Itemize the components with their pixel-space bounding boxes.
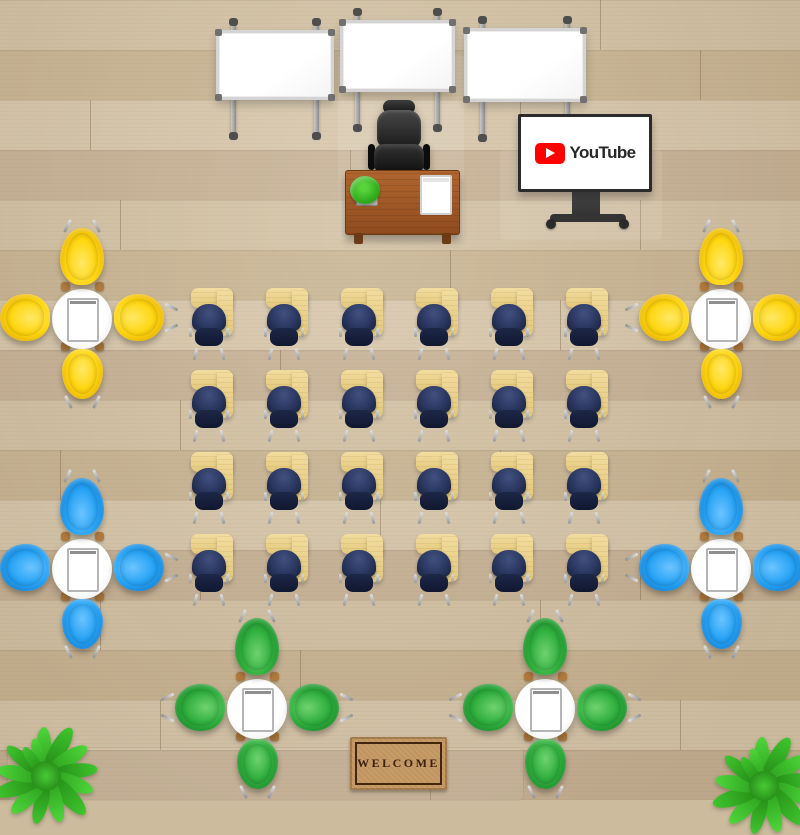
table-groups xyxy=(0,0,800,800)
table-leg xyxy=(95,532,104,541)
table-yellow-left-chair-top[interactable] xyxy=(60,228,104,285)
chair-leg xyxy=(92,469,101,483)
chair-leg xyxy=(92,645,101,659)
chair-leg xyxy=(731,469,740,483)
chair-leg xyxy=(161,714,175,723)
table-green-left-chair-right[interactable] xyxy=(289,684,339,731)
table-notebook xyxy=(67,548,99,592)
chair-leg xyxy=(625,574,639,583)
desk-leg xyxy=(354,233,363,244)
table-notebook xyxy=(706,298,738,342)
chair-leg xyxy=(703,645,712,659)
desk-plant-icon xyxy=(350,176,380,204)
desk-notebook xyxy=(420,175,452,215)
chair-leg xyxy=(703,395,712,409)
chair-leg xyxy=(165,574,179,583)
table-leg xyxy=(236,672,245,681)
round-table[interactable] xyxy=(691,539,751,599)
table-blue-right-chair-left[interactable] xyxy=(639,544,689,591)
table-green-left-chair-left[interactable] xyxy=(175,684,225,731)
chair-leg xyxy=(555,609,564,623)
chair-leg xyxy=(161,693,175,702)
table-blue-left xyxy=(0,475,167,659)
chair-leg xyxy=(702,469,711,483)
chair-leg xyxy=(702,219,711,233)
chair-leg xyxy=(165,303,179,312)
chair-leg xyxy=(731,219,740,233)
table-blue-right-chair-right[interactable] xyxy=(753,544,800,591)
chair-leg xyxy=(239,785,248,799)
table-green-left xyxy=(172,615,342,799)
table-blue-right-chair-top[interactable] xyxy=(699,478,743,535)
chair-leg xyxy=(64,395,73,409)
table-blue-left-chair-left[interactable] xyxy=(0,544,50,591)
round-table[interactable] xyxy=(515,679,575,739)
table-green-right-chair-right[interactable] xyxy=(577,684,627,731)
chair-leg xyxy=(526,609,535,623)
table-yellow-right-chair-top[interactable] xyxy=(699,228,743,285)
table-green-right xyxy=(460,615,630,799)
table-leg xyxy=(61,532,70,541)
table-leg xyxy=(524,672,533,681)
chair-leg xyxy=(527,785,536,799)
chair-leg xyxy=(165,324,179,333)
chair-leg xyxy=(267,785,276,799)
teacher-desk[interactable] xyxy=(345,170,460,235)
table-leg xyxy=(700,282,709,291)
table-leg xyxy=(700,532,709,541)
chair-leg xyxy=(267,609,276,623)
chair-leg xyxy=(625,303,639,312)
table-yellow-left-chair-left[interactable] xyxy=(0,294,50,341)
chair-leg xyxy=(340,714,354,723)
table-blue-left-chair-bottom[interactable] xyxy=(62,599,103,649)
doormat-frame: WELCOME xyxy=(355,742,442,785)
chair-leg xyxy=(625,324,639,333)
chair-leg xyxy=(628,693,642,702)
desk-leg xyxy=(442,233,451,244)
table-leg xyxy=(558,672,567,681)
table-yellow-left-chair-right[interactable] xyxy=(114,294,164,341)
table-blue-left-chair-top[interactable] xyxy=(60,478,104,535)
table-leg xyxy=(734,532,743,541)
chair-leg xyxy=(64,645,73,659)
table-leg xyxy=(95,282,104,291)
round-table[interactable] xyxy=(227,679,287,739)
round-table[interactable] xyxy=(52,539,112,599)
table-blue-right xyxy=(636,475,800,659)
plant-center xyxy=(31,761,61,791)
round-table[interactable] xyxy=(691,289,751,349)
table-yellow-right-chair-bottom[interactable] xyxy=(701,349,742,399)
chair-leg xyxy=(731,395,740,409)
chair-leg xyxy=(63,219,72,233)
doormat-text: WELCOME xyxy=(357,756,440,771)
table-notebook xyxy=(706,548,738,592)
virtual-classroom: { "scene": { "description": "Top-down vi… xyxy=(0,0,800,800)
chair-leg xyxy=(731,645,740,659)
table-green-right-chair-bottom[interactable] xyxy=(525,739,566,789)
table-yellow-right-chair-left[interactable] xyxy=(639,294,689,341)
table-blue-right-chair-bottom[interactable] xyxy=(701,599,742,649)
table-notebook xyxy=(530,688,562,732)
table-yellow-right-chair-right[interactable] xyxy=(753,294,800,341)
round-table[interactable] xyxy=(52,289,112,349)
table-green-left-chair-bottom[interactable] xyxy=(237,739,278,789)
plant-center xyxy=(749,771,779,801)
table-yellow-left xyxy=(0,225,167,409)
chair-leg xyxy=(92,395,101,409)
table-green-right-chair-left[interactable] xyxy=(463,684,513,731)
table-notebook xyxy=(242,688,274,732)
table-blue-left-chair-right[interactable] xyxy=(114,544,164,591)
chair-leg xyxy=(555,785,564,799)
chair-leg xyxy=(449,714,463,723)
table-leg xyxy=(734,282,743,291)
table-yellow-right xyxy=(636,225,800,409)
chair-leg xyxy=(449,693,463,702)
table-leg xyxy=(270,672,279,681)
chair-leg xyxy=(340,693,354,702)
chair-leg xyxy=(628,714,642,723)
table-notebook xyxy=(67,298,99,342)
chair-leg xyxy=(625,553,639,562)
table-leg xyxy=(61,282,70,291)
table-green-left-chair-top[interactable] xyxy=(235,618,279,675)
chair-leg xyxy=(92,219,101,233)
chair-leg xyxy=(165,553,179,562)
welcome-doormat[interactable]: WELCOME xyxy=(350,737,447,790)
table-green-right-chair-top[interactable] xyxy=(523,618,567,675)
chair-leg xyxy=(63,469,72,483)
table-yellow-left-chair-bottom[interactable] xyxy=(62,349,103,399)
chair-leg xyxy=(238,609,247,623)
